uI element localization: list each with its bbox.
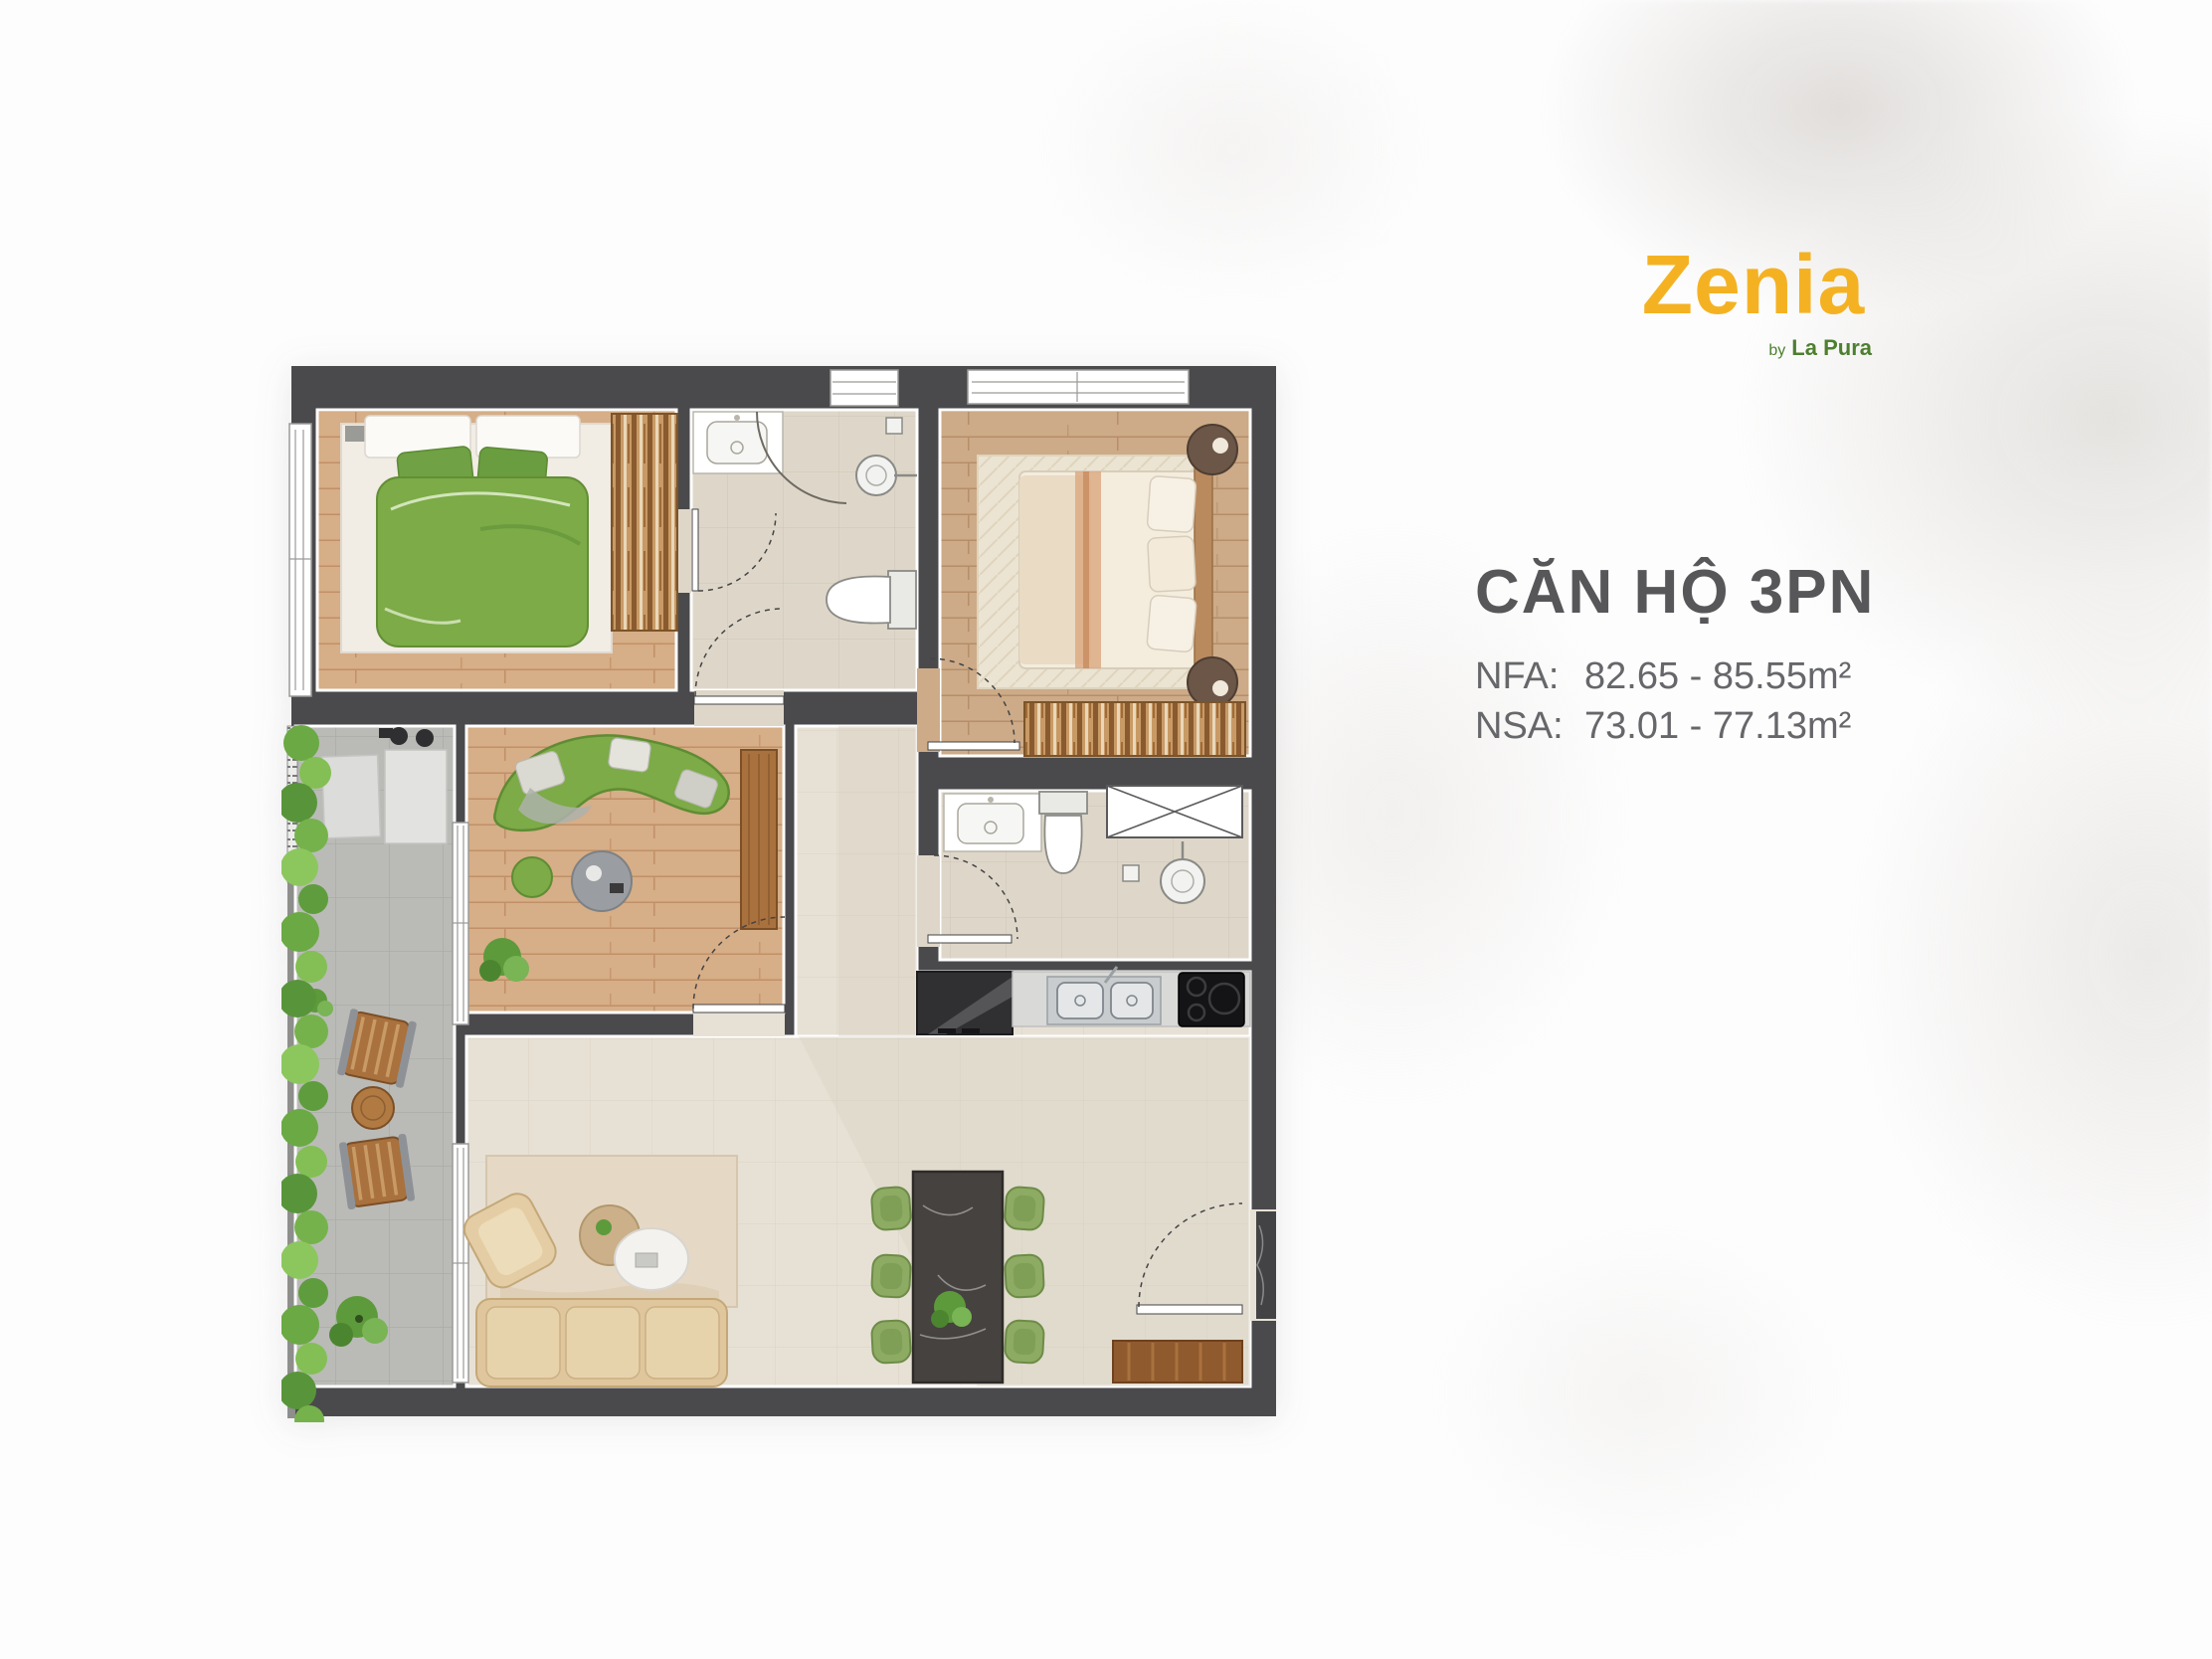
logo-zenia: Zenia (1629, 237, 1878, 333)
bedroom2-wardrobe (612, 414, 677, 631)
cooktop (1179, 973, 1244, 1026)
logo-tagline: byLa Pura (1629, 335, 1878, 361)
floor-plan (281, 360, 1276, 1422)
master-wardrobe (1024, 702, 1245, 756)
bedroom2-bed (365, 416, 588, 646)
bedroom2 (341, 414, 677, 652)
nsa-label: NSA: (1475, 701, 1584, 751)
entry-marble-threshold (1256, 1211, 1276, 1319)
dining-set (871, 1172, 1045, 1382)
unit-info: CĂN HỘ 3PN NFA: 82.65 - 85.55m² NSA: 73.… (1475, 557, 1875, 751)
coffee-table-round (572, 851, 632, 911)
nsa-value: 73.01 - 77.13m² (1584, 701, 1851, 751)
brand-logo: Zenia byLa Pura (1629, 237, 1878, 361)
bedroom2-window (289, 424, 311, 696)
master-headboard (1195, 465, 1212, 676)
tagline-name: La Pura (1791, 335, 1872, 360)
living-balcony-window (453, 1144, 468, 1382)
living-sofa (476, 1299, 727, 1386)
nfa-label: NFA: (1475, 651, 1584, 701)
master-nightstand-bottom (1188, 657, 1237, 707)
dining-table (913, 1172, 1003, 1382)
unit-title: CĂN HỘ 3PN (1475, 557, 1875, 628)
outdoor-chair-2 (339, 1134, 416, 1210)
master-bed (1019, 465, 1212, 676)
refrigerator (917, 972, 1013, 1034)
green-pouf (512, 857, 552, 897)
balcony-mat-1 (322, 755, 381, 838)
nfa-value: 82.65 - 85.55m² (1584, 651, 1851, 701)
washing-machine (1107, 786, 1242, 837)
tagline-by: by (1768, 342, 1785, 359)
entry-sideboard (1113, 1341, 1242, 1382)
master-nightstand-top (1188, 425, 1237, 474)
balcony-mat-2 (385, 750, 447, 843)
nsa-row: NSA: 73.01 - 77.13m² (1475, 701, 1875, 751)
table-plant (596, 1219, 612, 1235)
master-bedroom-window (968, 370, 1189, 404)
nfa-row: NFA: 82.65 - 85.55m² (1475, 651, 1875, 701)
bedroom3-balcony-window (453, 823, 468, 1024)
bathroom1-window (830, 370, 898, 406)
bathroom2-sink (944, 794, 1041, 851)
kitchen (917, 967, 1250, 1034)
outdoor-table (352, 1087, 394, 1129)
bathroom1-sink (693, 412, 783, 473)
